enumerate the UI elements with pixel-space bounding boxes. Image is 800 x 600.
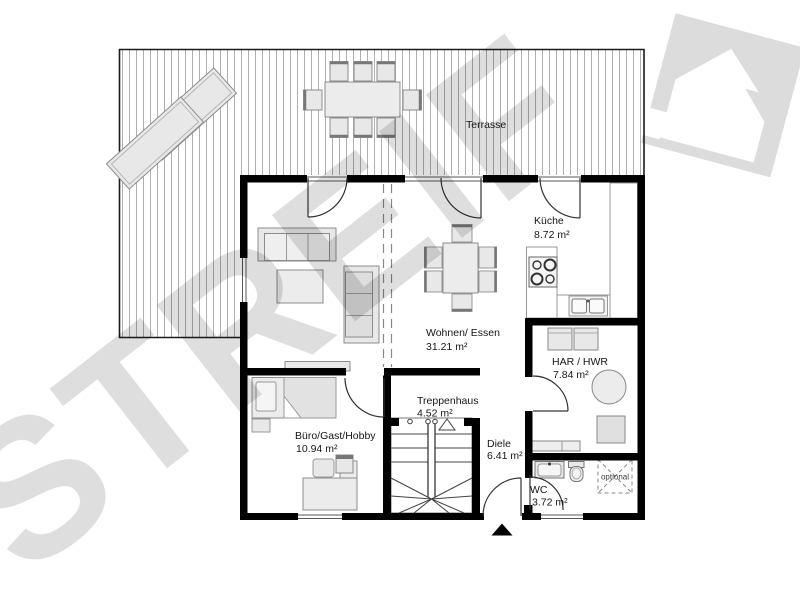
kitchen-sink — [569, 296, 608, 316]
streif-house-logo-icon — [641, 13, 800, 177]
room-area-kueche: 8.72 m² — [534, 229, 570, 241]
room-label-wc: WC — [530, 484, 548, 496]
har-shelf — [531, 441, 580, 451]
room-label-treppenhaus: Treppenhaus — [417, 395, 479, 407]
room-area-har: 7.84 m² — [553, 369, 589, 381]
entrance-arrow-icon — [492, 524, 513, 536]
floorplan-svg: Terrasse Küche 8.72 m² Wohnen/ Essen 31.… — [0, 0, 800, 600]
optional-label: optional — [601, 473, 629, 482]
room-area-wc: 3.72 m² — [532, 497, 568, 509]
room-area-diele: 6.41 m² — [487, 450, 523, 462]
room-area-treppenhaus: 4.52 m² — [417, 408, 453, 420]
room-area-wohnen: 31.21 m² — [426, 341, 468, 353]
printer — [336, 455, 353, 473]
room-area-buero: 10.94 m² — [296, 443, 338, 455]
room-label-wohnen: Wohnen/ Essen — [426, 327, 500, 339]
toilet — [569, 462, 585, 482]
wc-sink — [535, 462, 564, 479]
floorplan-canvas: Terrasse Küche 8.72 m² Wohnen/ Essen 31.… — [0, 0, 800, 600]
room-label-buero: Büro/Gast/Hobby — [295, 430, 376, 442]
room-label-diele: Diele — [487, 438, 511, 450]
stove — [529, 257, 557, 287]
room-label-har: HAR / HWR — [552, 356, 608, 368]
desk-chair — [313, 459, 334, 477]
laundry-basket — [592, 370, 626, 404]
har-appliance — [597, 416, 625, 443]
